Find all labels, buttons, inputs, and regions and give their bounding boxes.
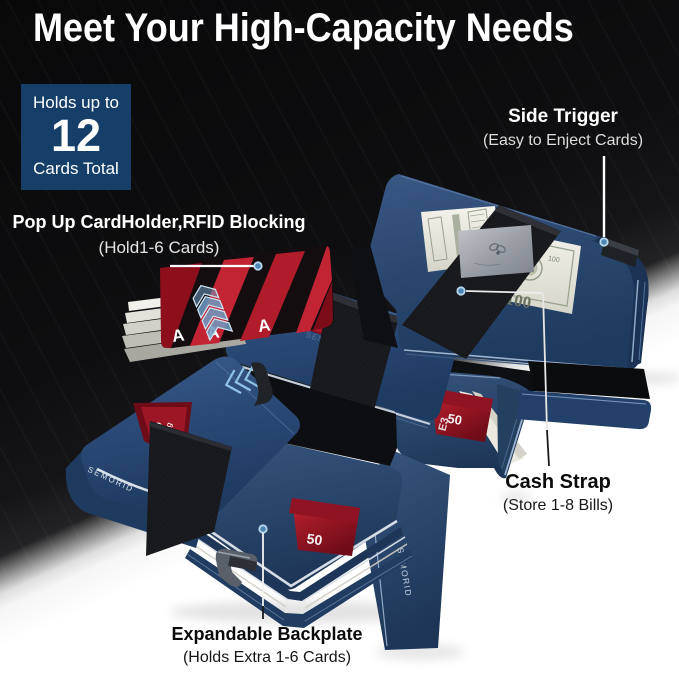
svg-text:A: A — [257, 315, 272, 336]
svg-text:A: A — [171, 325, 186, 346]
svg-text:50: 50 — [306, 530, 324, 548]
